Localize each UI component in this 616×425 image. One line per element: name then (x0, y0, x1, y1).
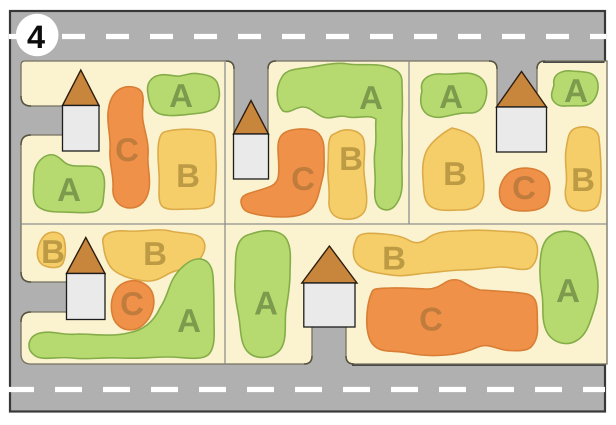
svg-text:C: C (120, 285, 144, 322)
svg-text:B: B (443, 155, 467, 192)
svg-text:B: B (176, 157, 200, 194)
svg-text:A: A (359, 79, 383, 116)
svg-text:B: B (571, 161, 595, 198)
svg-text:A: A (254, 285, 278, 322)
svg-text:A: A (169, 77, 193, 114)
svg-text:B: B (339, 140, 363, 177)
svg-text:A: A (564, 72, 588, 109)
svg-text:B: B (143, 235, 167, 272)
svg-text:A: A (556, 272, 580, 309)
svg-text:C: C (115, 131, 139, 168)
svg-text:C: C (419, 301, 443, 338)
svg-text:4: 4 (27, 19, 45, 55)
svg-text:C: C (512, 169, 536, 206)
svg-text:A: A (57, 171, 81, 208)
svg-text:B: B (41, 233, 65, 270)
svg-text:B: B (382, 240, 406, 277)
svg-text:A: A (177, 302, 201, 339)
svg-text:A: A (439, 78, 463, 115)
svg-text:C: C (291, 160, 315, 197)
